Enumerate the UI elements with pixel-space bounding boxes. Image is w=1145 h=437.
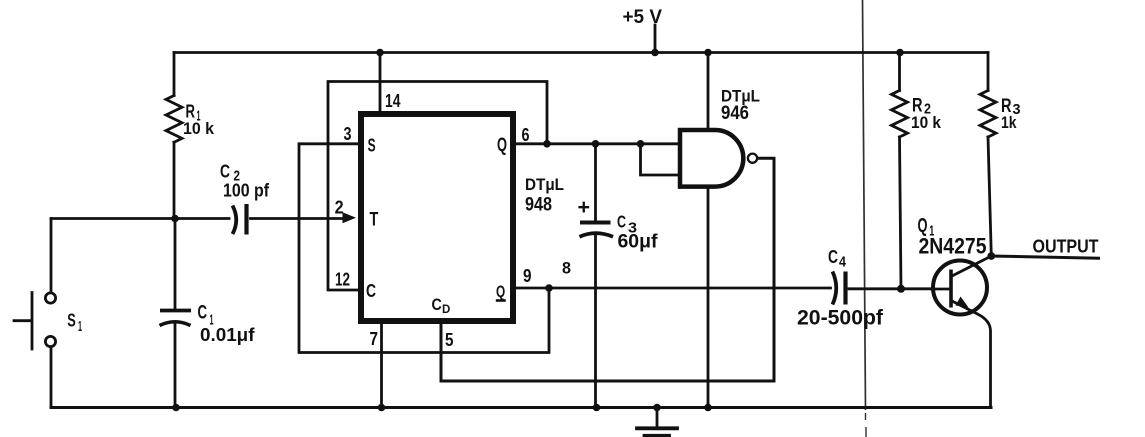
svg-text:0.01μf: 0.01μf <box>200 325 256 345</box>
svg-text:Q: Q <box>497 135 507 156</box>
svg-text:9: 9 <box>523 266 532 286</box>
svg-text:+: + <box>578 196 591 219</box>
svg-text:12: 12 <box>335 270 350 290</box>
svg-text:60μf: 60μf <box>618 232 659 253</box>
svg-text:1k: 1k <box>1001 113 1017 132</box>
svg-text:C: C <box>220 161 230 182</box>
svg-text:948: 948 <box>525 195 552 216</box>
svg-text:2N4275: 2N4275 <box>919 234 987 259</box>
svg-text:Q: Q <box>496 282 505 301</box>
svg-text:10 k: 10 k <box>183 119 215 138</box>
svg-text:14: 14 <box>385 91 401 111</box>
svg-text:8: 8 <box>562 259 571 278</box>
svg-text:C: C <box>198 303 208 324</box>
svg-text:6: 6 <box>522 125 530 145</box>
svg-text:C: C <box>432 295 442 314</box>
svg-text:946: 946 <box>721 103 749 124</box>
svg-text:7: 7 <box>370 329 379 349</box>
svg-text:DTμL: DTμL <box>525 175 564 194</box>
svg-text:4: 4 <box>839 254 847 271</box>
svg-text:3: 3 <box>344 124 352 144</box>
svg-text:1: 1 <box>78 319 82 335</box>
svg-text:C: C <box>366 281 376 301</box>
svg-text:C: C <box>617 212 626 232</box>
svg-text:S: S <box>67 310 76 331</box>
svg-text:S: S <box>368 136 376 156</box>
svg-text:OUTPUT: OUTPUT <box>1033 236 1100 257</box>
svg-text:2: 2 <box>335 198 344 218</box>
svg-text:10 k: 10 k <box>911 113 941 132</box>
svg-text:T: T <box>370 210 379 231</box>
svg-text:+5 V: +5 V <box>623 7 663 28</box>
svg-text:20-500pf: 20-500pf <box>797 307 884 330</box>
svg-text:C: C <box>828 246 838 267</box>
svg-text:5: 5 <box>445 330 454 350</box>
svg-text:D: D <box>442 304 450 316</box>
svg-text:100 pf: 100 pf <box>223 181 270 201</box>
